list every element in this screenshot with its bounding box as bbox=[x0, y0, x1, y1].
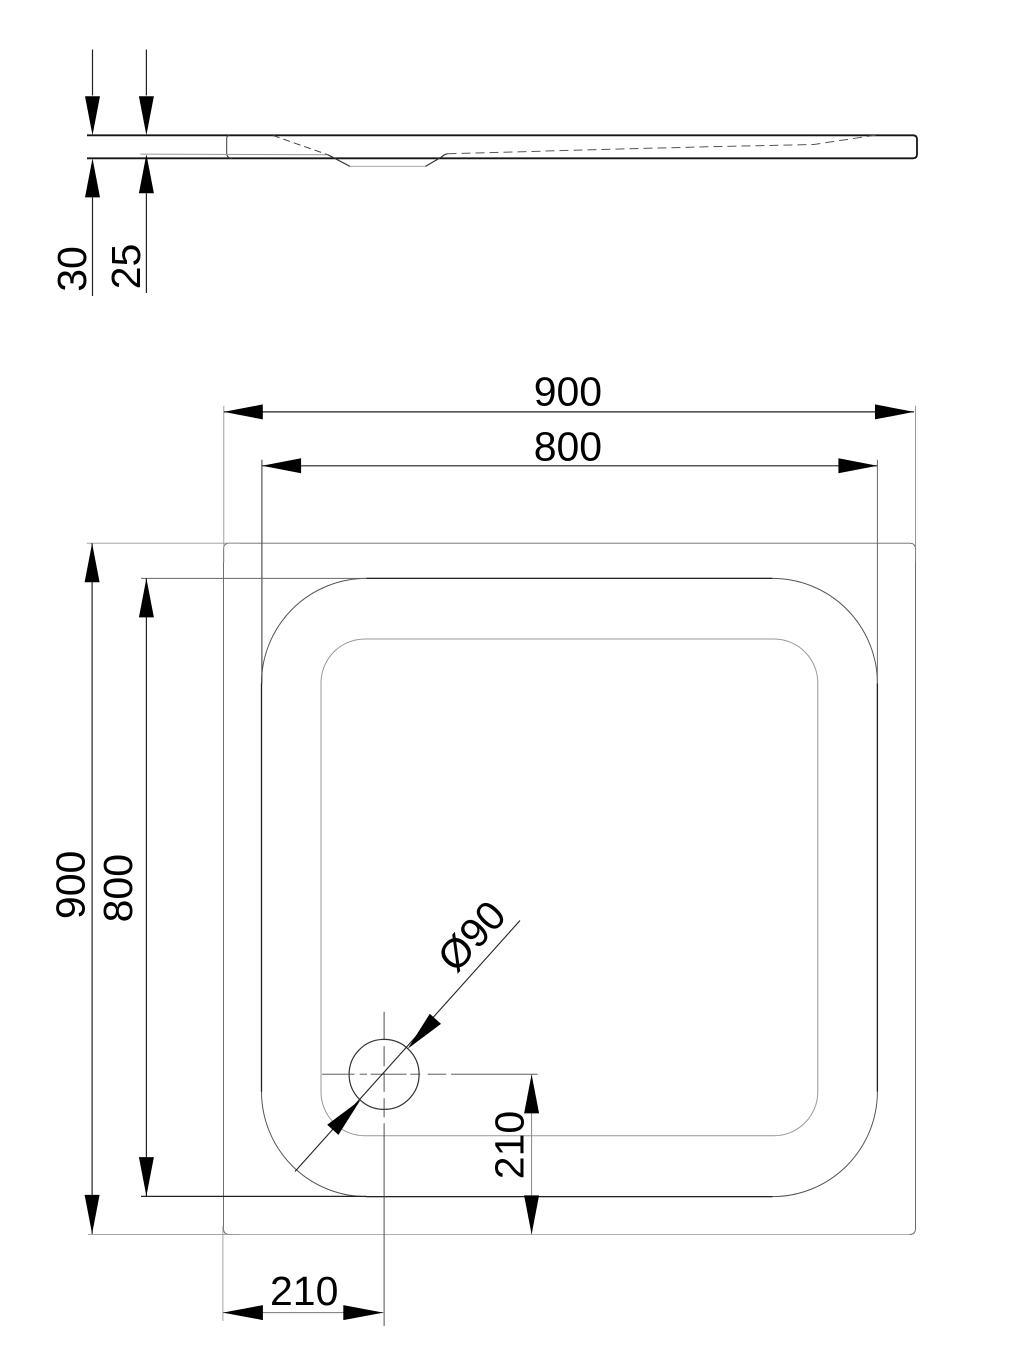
svg-text:25: 25 bbox=[103, 244, 149, 290]
svg-text:800: 800 bbox=[534, 423, 602, 469]
svg-text:800: 800 bbox=[95, 854, 141, 922]
svg-text:210: 210 bbox=[487, 1111, 533, 1179]
svg-text:30: 30 bbox=[49, 246, 95, 292]
svg-text:900: 900 bbox=[48, 851, 94, 919]
svg-text:900: 900 bbox=[534, 369, 602, 415]
svg-text:210: 210 bbox=[270, 1268, 338, 1314]
